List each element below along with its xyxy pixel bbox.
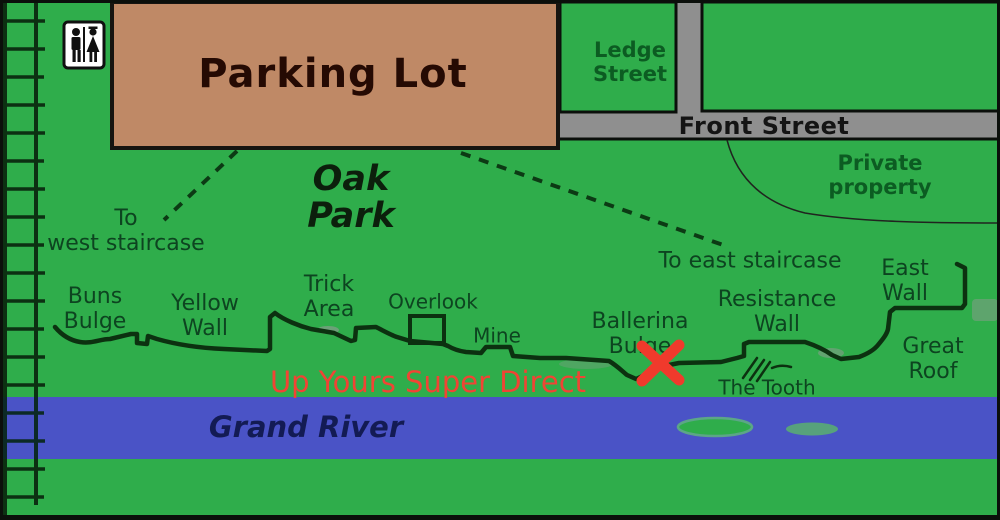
route-marker-layer	[0, 0, 1000, 520]
climbing-area-map: Parking LotLedge StreetFront StreetPriva…	[0, 0, 1000, 520]
red-x-marker	[642, 345, 679, 381]
